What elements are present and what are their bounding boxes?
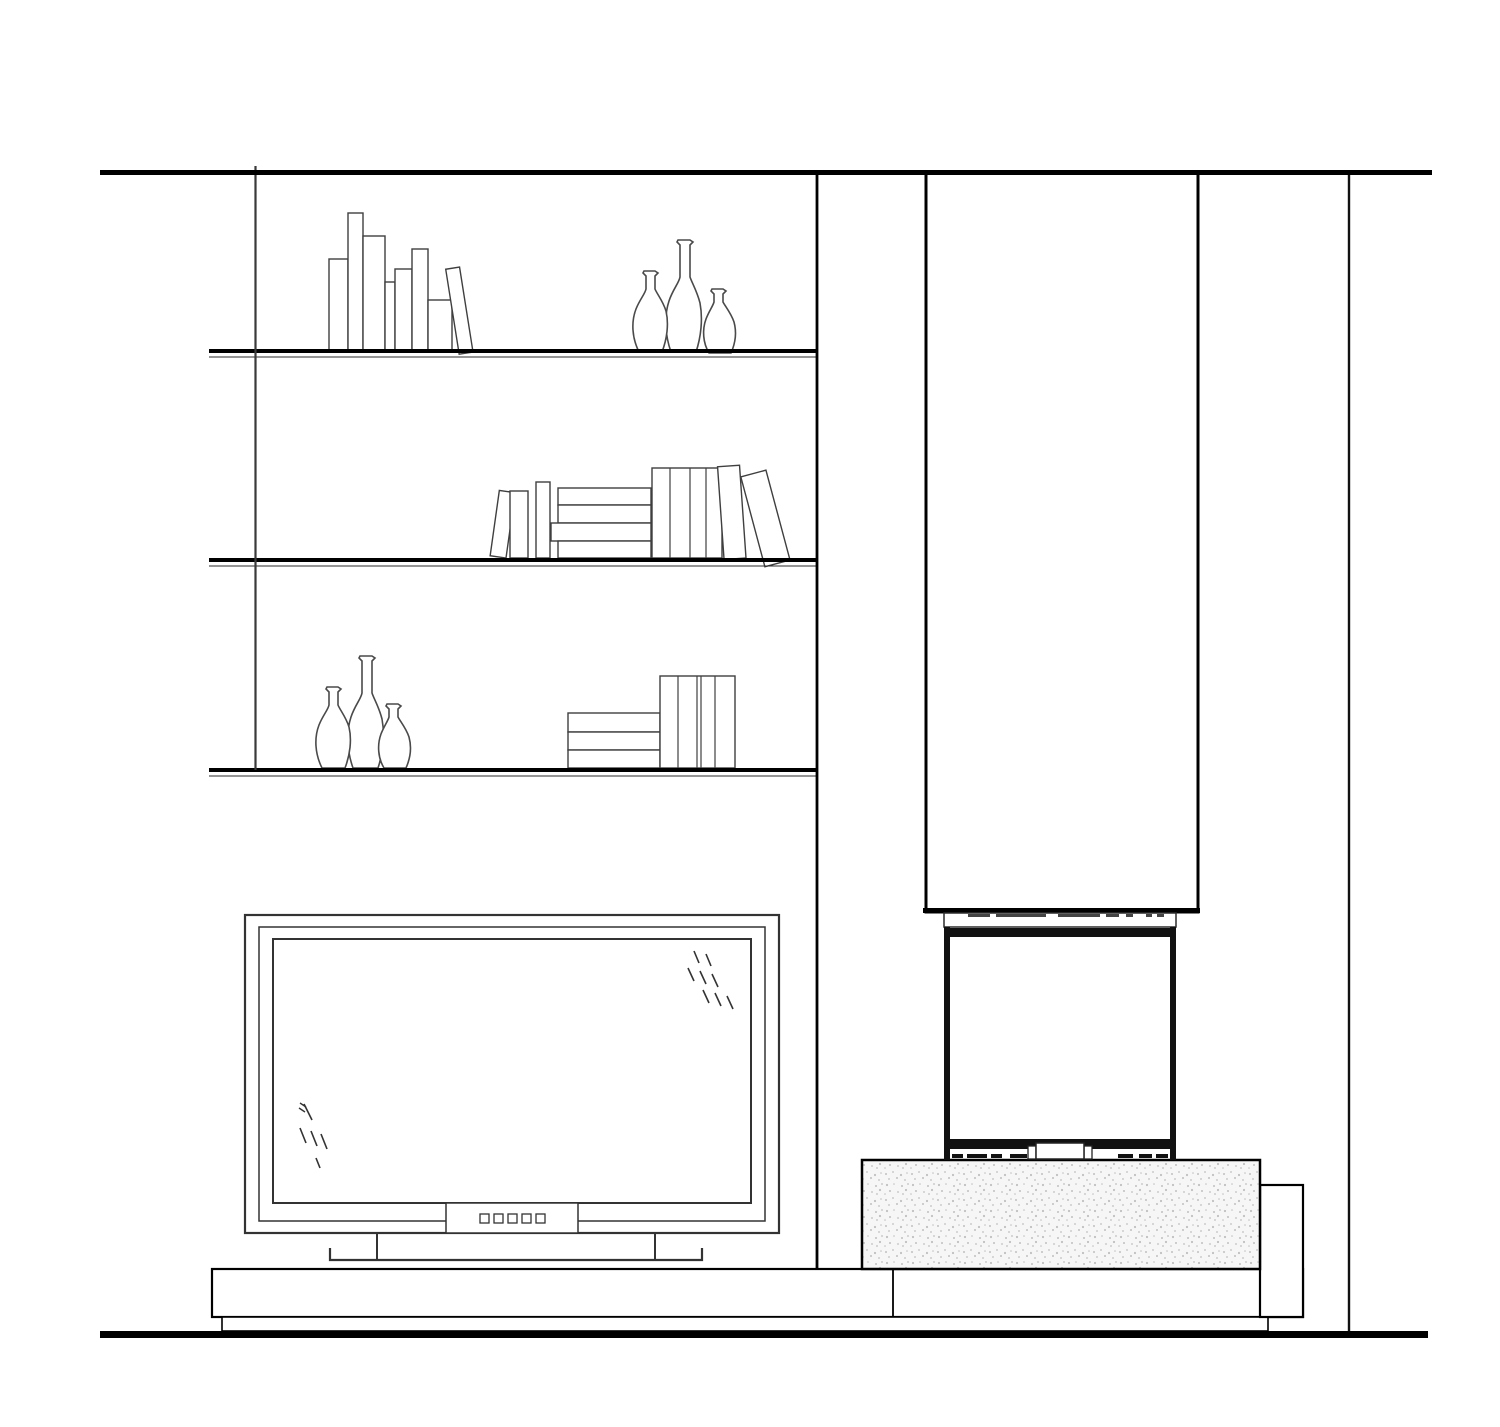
hearth-step (1260, 1185, 1303, 1317)
tv-button-1 (480, 1214, 489, 1223)
firebox-burner-post-right (1084, 1146, 1092, 1159)
book-mid-stack-1 (558, 488, 651, 505)
tv-button-2 (494, 1214, 503, 1223)
firebox-strip-dash-2 (967, 1154, 987, 1158)
book-mid-1 (510, 491, 528, 558)
shelf-3-board (209, 768, 817, 772)
tv-button-4 (522, 1214, 531, 1223)
fireplace-collar-dash-4 (1106, 914, 1119, 917)
fireplace-collar-dash-6 (1146, 914, 1152, 917)
firebox-wall-right (1170, 927, 1176, 1160)
book-mid-stack-3 (551, 523, 651, 541)
fireplace-collar-dash-2 (996, 914, 1046, 917)
firebox-wall-left (944, 927, 950, 1160)
book-bottom-stack-3 (568, 750, 660, 768)
ceiling-line (100, 170, 1432, 175)
book-mid-group (652, 468, 722, 558)
elevation-drawing (0, 0, 1500, 1427)
tv-stand-base (330, 1248, 702, 1260)
fireplace-collar-dash-1 (968, 914, 990, 917)
fireplace-collar-dash-5 (1126, 914, 1133, 917)
vase-bottom-left (316, 687, 351, 768)
book-top-4 (385, 282, 395, 352)
book-top-6 (412, 249, 428, 352)
tv-button-5 (536, 1214, 545, 1223)
firebox-burner-box (1036, 1143, 1084, 1159)
book-mid-leaning-right-2 (741, 470, 790, 567)
book-bottom-stack-1 (568, 713, 660, 732)
firebox-strip-dash-3 (991, 1154, 1002, 1158)
fireplace-chimney (926, 172, 1198, 912)
drawing-root (100, 166, 1432, 1338)
book-mid-2 (536, 482, 550, 558)
firebox-strip-dash-4 (1010, 1154, 1027, 1158)
vase-top-right (704, 289, 736, 353)
book-top-7 (428, 300, 452, 352)
hearth-base (862, 1160, 1260, 1269)
floor-line (100, 1331, 1428, 1338)
elevation-drawing-canvas (0, 0, 1500, 1427)
fireplace-collar-dash-7 (1157, 914, 1164, 917)
firebox-strip-dash-8 (1156, 1154, 1168, 1158)
firebox-strip-dash-6 (1118, 1154, 1133, 1158)
vase-top-left (633, 271, 668, 352)
bench (212, 1269, 1303, 1317)
book-top-5 (395, 269, 412, 352)
shelf-1-board (209, 349, 817, 353)
tv-button-3 (508, 1214, 517, 1223)
vase-bottom-right (379, 704, 411, 768)
firebox-strip-dash-1 (952, 1154, 963, 1158)
fireplace-collar-dash-3 (1058, 914, 1100, 917)
book-top-2 (348, 213, 363, 352)
firebox-strip-dash-7 (1139, 1154, 1152, 1158)
vase-top-middle (666, 240, 702, 352)
shelf-2-board (209, 558, 817, 562)
tv-screen (273, 939, 751, 1203)
book-mid-stack-4 (558, 541, 651, 558)
firebox-burner-post-left (1028, 1146, 1036, 1159)
book-bottom-stack-2 (568, 732, 660, 750)
book-top-3 (363, 236, 385, 352)
book-top-1 (329, 259, 348, 352)
firebox-top-band (950, 928, 1170, 937)
book-mid-stack-2 (558, 505, 651, 523)
bench-plinth (222, 1317, 1268, 1331)
